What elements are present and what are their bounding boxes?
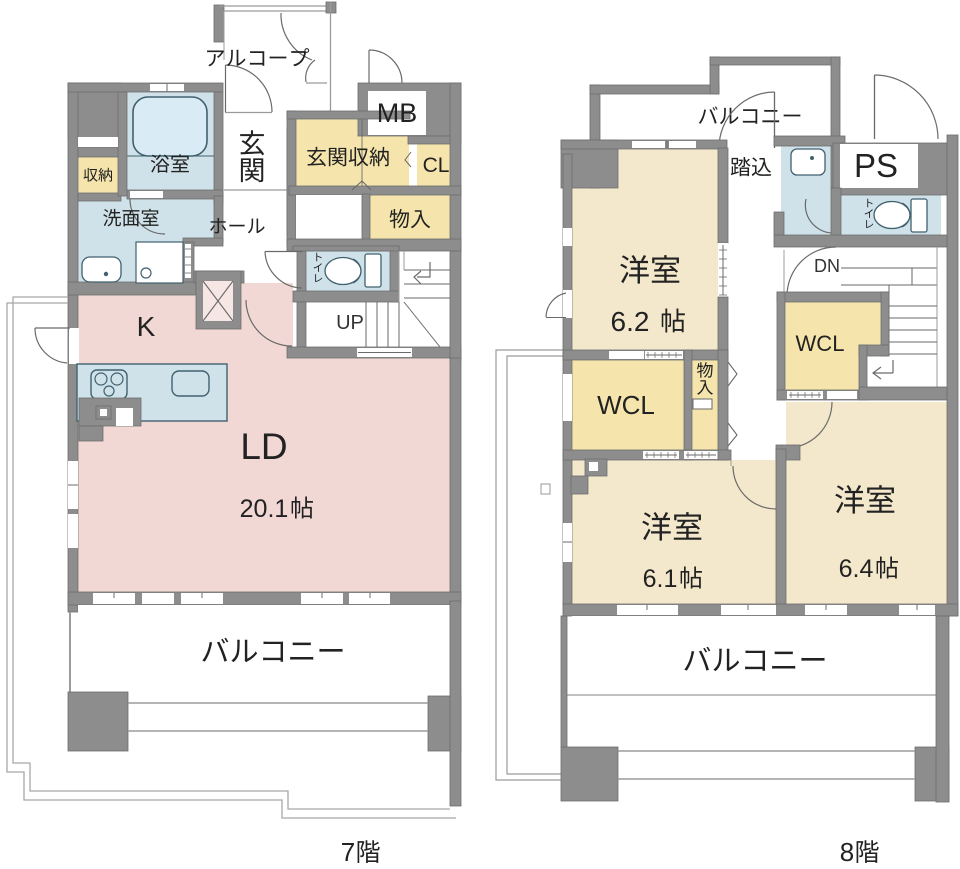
svg-text:8: 8 (840, 837, 854, 867)
svg-text:6.2: 6.2 (611, 306, 650, 337)
svg-text:6.4: 6.4 (839, 555, 874, 583)
svg-text:MB: MB (377, 98, 418, 128)
svg-text:K: K (137, 311, 156, 342)
svg-text:UP: UP (336, 312, 364, 334)
svg-text:20.1: 20.1 (240, 495, 289, 523)
svg-text:CL: CL (423, 154, 450, 177)
svg-text:PS: PS (854, 147, 898, 184)
svg-text:WCL: WCL (597, 390, 655, 420)
svg-text:7: 7 (341, 837, 355, 867)
svg-text:6.1: 6.1 (643, 565, 678, 593)
svg-text:WCL: WCL (796, 331, 845, 356)
svg-text:DN: DN (814, 256, 840, 276)
svg-text:LD: LD (240, 426, 287, 467)
